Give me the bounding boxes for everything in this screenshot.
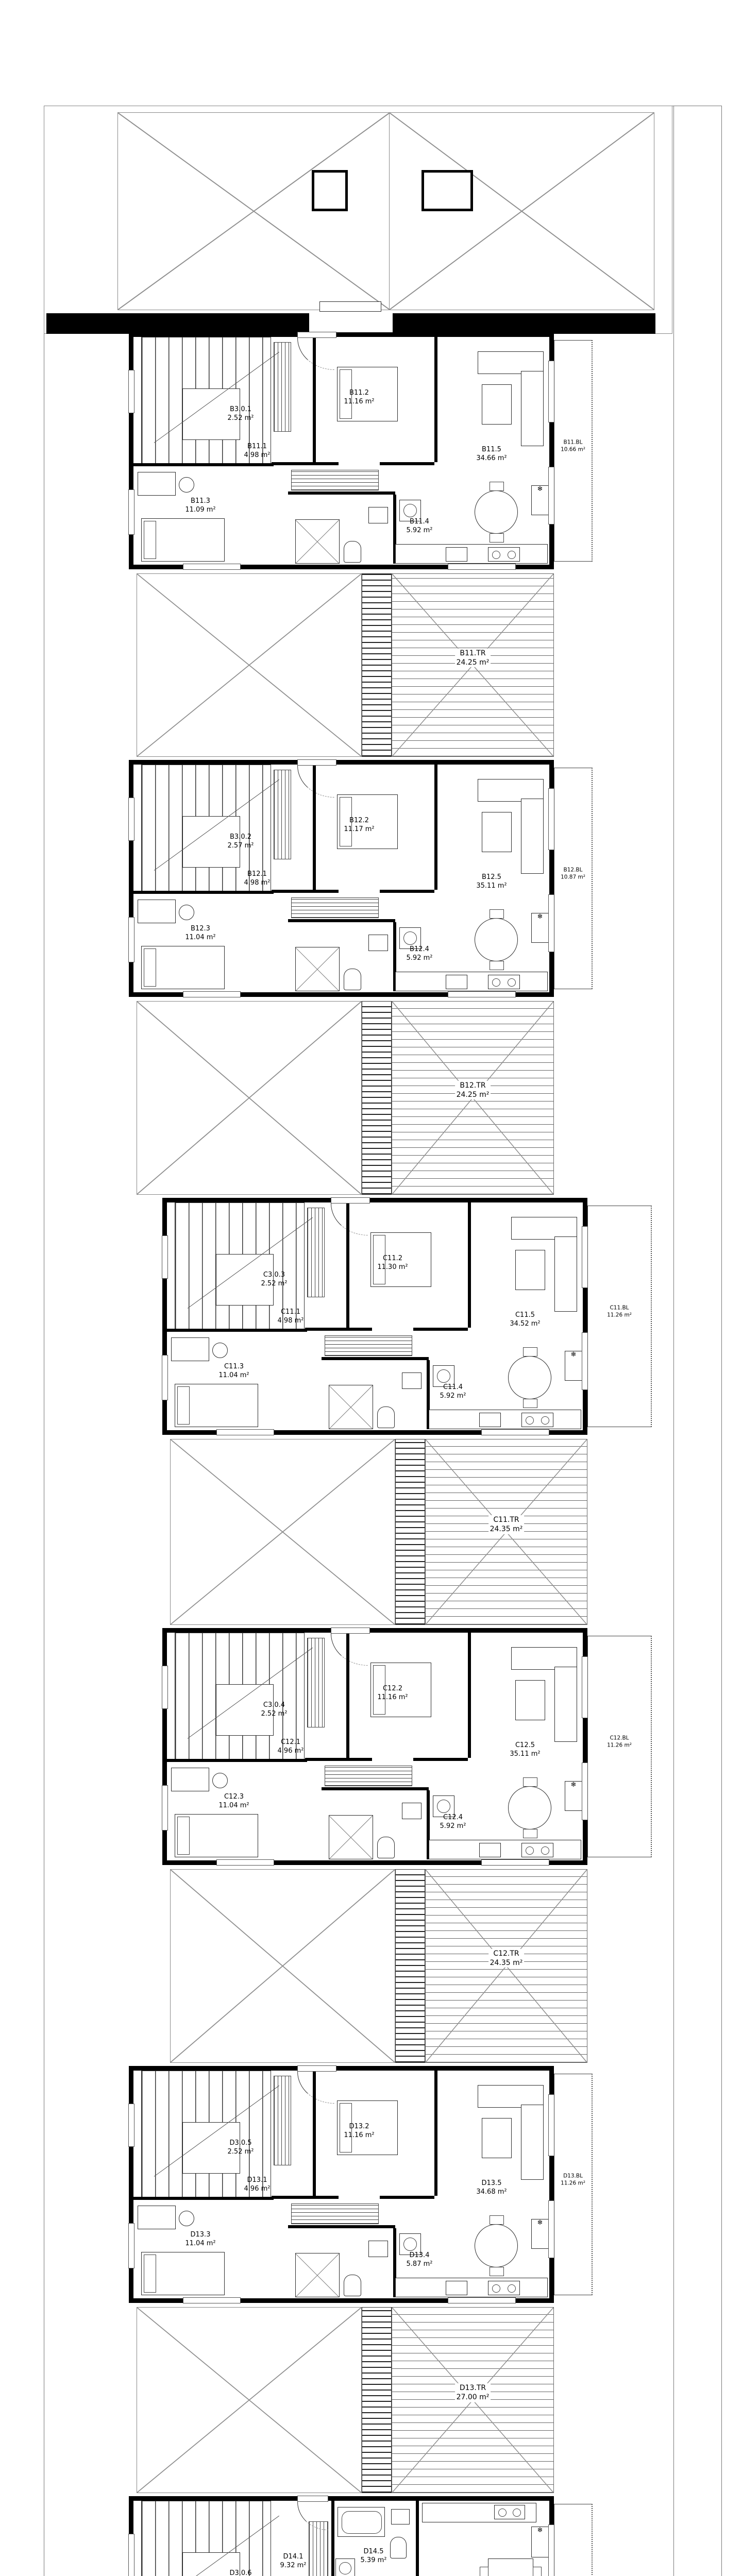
- stove: [494, 2505, 525, 2519]
- wall: [416, 2501, 419, 2576]
- floor-plan-unit-D14: ❄ D3.0.62.52 m² D14.19.32 m² D14.55.39 m…: [129, 2496, 554, 2576]
- window: [128, 2223, 134, 2268]
- window: [162, 1355, 168, 1400]
- wall: [288, 2225, 395, 2228]
- wardrobe-hatch: [325, 1766, 412, 1786]
- door-swing-arc: [297, 2502, 328, 2530]
- wall: [322, 1787, 429, 1790]
- terrace-label: C11.TR24.35 m²: [488, 1515, 525, 1534]
- toilet: [377, 1406, 395, 1428]
- walkway-hatch: [395, 1439, 425, 1625]
- kitchen-sink: [446, 2281, 467, 2295]
- balcony-D14: D14.BL11.28 m²: [554, 2504, 593, 2576]
- wall: [305, 1328, 372, 1331]
- kitchen-sink: [479, 1843, 501, 1857]
- wall: [468, 1202, 471, 1328]
- void-below: [170, 1869, 395, 2063]
- window: [128, 2534, 134, 2576]
- desk-chair: [212, 1343, 228, 1358]
- walkway-hatch: [362, 1001, 392, 1195]
- room-label-living: D13.534.68 m²: [476, 2179, 507, 2197]
- room-label-bathroom: D13.45.87 m²: [407, 2251, 433, 2269]
- wall: [380, 890, 434, 893]
- cross-brace-icon: [137, 2308, 361, 2493]
- wall: [380, 462, 434, 465]
- room-label-bathroom: B11.45.92 m²: [407, 518, 433, 535]
- room-label-hall: C12.14.96 m²: [278, 1738, 304, 1756]
- wall: [468, 1633, 471, 1758]
- bed-single: [141, 518, 225, 562]
- freezer-icon: ❄: [531, 2527, 549, 2557]
- entry-door-gap: [297, 2496, 328, 2502]
- room-label-core: B3.0.12.52 m²: [228, 405, 254, 423]
- balcony-D13: D13.BL11.26 m²: [554, 2074, 593, 2295]
- window: [183, 2297, 241, 2303]
- kitchen-counter: [395, 2278, 548, 2297]
- sofa: [554, 1667, 577, 1742]
- door-swing-arc: [297, 2072, 334, 2104]
- cross-brace-icon: [137, 574, 361, 756]
- wall: [133, 891, 274, 894]
- wardrobe-hatch: [274, 770, 291, 859]
- roof-parapet-wall: [46, 313, 309, 334]
- shower: [329, 1815, 373, 1859]
- entry-door-gap: [297, 332, 336, 338]
- balcony-label: C11.BL11.26 m²: [607, 1305, 632, 1319]
- cross-brace-icon: [171, 1439, 395, 1624]
- door-swing-arc: [297, 766, 334, 798]
- freezer-icon: ❄: [565, 1781, 582, 1811]
- wall: [272, 890, 339, 893]
- room-label-bathroom: B12.45.92 m²: [407, 945, 433, 963]
- window: [128, 489, 134, 535]
- wardrobe-hatch: [274, 2076, 291, 2165]
- toilet: [377, 1837, 395, 1858]
- balcony-label: D13.BL11.26 m²: [561, 2173, 585, 2187]
- window: [481, 1429, 549, 1435]
- balcony-label: C12.BL11.26 m²: [607, 1735, 632, 1749]
- floor-plan-unit-D13: ❄ D3.0.52.52 m² D13.14.96 m² D13.211.16 …: [129, 2066, 554, 2303]
- room-label-hall: D14.19.32 m²: [280, 2553, 307, 2570]
- window: [448, 564, 516, 570]
- wall: [305, 1758, 372, 1761]
- entry-door-gap: [331, 1628, 370, 1634]
- balcony-label: B11.BL10.66 m²: [561, 439, 585, 453]
- dining-table: [488, 2558, 533, 2576]
- door-swing-arc: [331, 1204, 368, 1235]
- desk-chair: [179, 2211, 194, 2226]
- wardrobe-hatch: [307, 1638, 325, 1727]
- window: [128, 917, 134, 962]
- freezer-icon: ❄: [565, 1351, 582, 1381]
- washing-machine: [335, 2558, 355, 2576]
- desk: [171, 1337, 209, 1361]
- bathtub: [338, 2507, 385, 2537]
- entry-door-gap: [297, 759, 336, 766]
- freezer-icon: ❄: [531, 913, 549, 943]
- bed-single: [141, 946, 225, 989]
- terrace-deck: D13.TR27.00 m²: [392, 2307, 554, 2493]
- roof-hatch: [312, 170, 348, 211]
- sofa: [521, 2105, 544, 2180]
- window: [216, 1429, 274, 1435]
- stove: [488, 2281, 520, 2295]
- room-label-bathroom: C12.45.92 m²: [440, 1814, 466, 1831]
- dining-table: [475, 490, 518, 534]
- window: [162, 1666, 168, 1709]
- cross-brace-icon: [137, 1002, 361, 1194]
- room-label-bathroom: D14.55.39 m²: [361, 2548, 387, 2565]
- room-label-living: C12.535.11 m²: [510, 1741, 540, 1759]
- desk-chair: [179, 477, 194, 493]
- terrace-label: C12.TR24.35 m²: [488, 1949, 525, 1968]
- desk: [138, 2206, 176, 2229]
- terrace-deck: B12.TR24.25 m²: [392, 1001, 554, 1195]
- wall: [331, 2501, 334, 2576]
- room-label-hall: C11.14.98 m²: [278, 1308, 304, 1326]
- terrace-label: B12.TR24.25 m²: [455, 1081, 491, 1099]
- coffee-table: [482, 384, 512, 425]
- window: [183, 991, 241, 997]
- balcony-C11: C11.BL11.26 m²: [587, 1206, 652, 1427]
- bathroom-sink: [391, 2509, 410, 2524]
- balcony-B11: B11.BL10.66 m²: [554, 340, 593, 562]
- wardrobe-hatch: [291, 2204, 379, 2224]
- room-label-bedroom: B11.211.16 m²: [344, 389, 374, 406]
- room-label-living: B11.534.66 m²: [476, 446, 507, 463]
- wall: [167, 1329, 307, 1332]
- room-label-bedroom: C12.211.16 m²: [377, 1685, 408, 1702]
- desk-chair: [179, 905, 194, 920]
- wall: [434, 2071, 437, 2196]
- bathroom-sink: [368, 935, 388, 951]
- wardrobe-hatch: [307, 1208, 325, 1297]
- shower: [329, 1385, 373, 1429]
- window: [128, 370, 134, 413]
- window: [481, 1859, 549, 1866]
- terrace-label: B11.TR24.25 m²: [455, 649, 491, 667]
- roof-parapet-wall: [393, 313, 655, 334]
- terrace-deck: C12.TR24.35 m²: [425, 1869, 587, 2063]
- room-label-hall: D13.14.96 m²: [244, 2176, 271, 2194]
- balcony-B12: B12.BL10.87 m²: [554, 768, 593, 989]
- desk: [138, 472, 176, 496]
- void-below: [137, 1001, 362, 1195]
- kitchen-sink: [446, 975, 467, 989]
- window: [216, 1859, 274, 1866]
- wall: [313, 337, 316, 462]
- coffee-table: [515, 1680, 545, 1720]
- bed-single: [175, 1814, 258, 1857]
- balcony-C12: C12.BL11.26 m²: [587, 1636, 652, 1857]
- wall: [413, 1328, 468, 1331]
- roof-void: [117, 112, 390, 310]
- roof-cross-brace-icon: [118, 113, 390, 310]
- room-label-bedroom: C12.311.04 m²: [218, 1793, 249, 1810]
- room-label-core: C3.0.32.52 m²: [261, 1271, 288, 1289]
- terrace-deck: C11.TR24.35 m²: [425, 1439, 587, 1625]
- toilet: [344, 2275, 361, 2296]
- window: [128, 2104, 134, 2147]
- window: [162, 1235, 168, 1279]
- kitchen-sink: [479, 1413, 501, 1427]
- wardrobe-hatch: [274, 342, 291, 432]
- floor-plan-unit-C11: ❄ C3.0.32.52 m² C11.14.98 m² C11.211.30 …: [162, 1198, 587, 1435]
- wall: [288, 492, 395, 495]
- toilet: [344, 969, 361, 990]
- wall: [272, 462, 339, 465]
- room-label-core: B3.0.22.57 m²: [228, 833, 254, 851]
- floor-plan-unit-B11: ❄ B3.0.12.52 m² B11.14.98 m² B11.211.16 …: [129, 332, 554, 569]
- dining-table: [475, 918, 518, 961]
- room-label-core: C3.0.42.52 m²: [261, 1701, 288, 1719]
- void-below: [137, 573, 362, 757]
- window: [183, 564, 241, 570]
- room-label-bedroom: B12.211.17 m²: [344, 817, 374, 834]
- roof-cross-brace-icon: [390, 113, 654, 310]
- sofa: [554, 1236, 577, 1312]
- room-label-bathroom: C11.45.92 m²: [440, 1383, 466, 1401]
- wall: [288, 919, 395, 922]
- window: [128, 798, 134, 841]
- door-swing-arc: [331, 1634, 368, 1666]
- room-label-living: B12.535.11 m²: [476, 873, 507, 891]
- window: [448, 991, 516, 997]
- stove: [488, 975, 520, 989]
- kitchen-counter: [429, 1840, 581, 1859]
- wall: [413, 1758, 468, 1761]
- room-label-bedroom: C11.211.30 m²: [377, 1255, 408, 1272]
- room-label-hall: B11.14.98 m²: [244, 443, 271, 460]
- sheet-boundary-left: [44, 106, 44, 2576]
- bathroom-sink: [402, 1803, 421, 1819]
- kitchen-sink: [446, 547, 467, 562]
- stove: [521, 1413, 553, 1427]
- floor-plan-unit-B12: ❄ B3.0.22.57 m² B12.14.98 m² B12.211.17 …: [129, 760, 554, 997]
- dining-table: [508, 1356, 551, 1399]
- wall: [322, 1357, 429, 1360]
- floor-plan-unit-C12: ❄ C3.0.42.52 m² C12.14.96 m² C12.211.16 …: [162, 1628, 587, 1865]
- room-label-bedroom: D13.311.04 m²: [185, 2231, 215, 2248]
- roof-hatch: [421, 170, 473, 211]
- desk: [138, 900, 176, 923]
- freezer-icon: ❄: [531, 485, 549, 515]
- desk-chair: [212, 1773, 228, 1788]
- wall: [313, 765, 316, 890]
- balcony-label: B12.BL10.87 m²: [561, 867, 585, 881]
- kitchen-counter: [395, 544, 548, 564]
- bed-single: [175, 1384, 258, 1427]
- bathroom-sink: [368, 507, 388, 523]
- site-line-right-inner: [673, 106, 674, 2576]
- room-label-core: D3.0.62.52 m²: [228, 2569, 254, 2576]
- window: [162, 1785, 168, 1831]
- shower: [295, 519, 340, 564]
- stove: [521, 1843, 553, 1857]
- dining-table: [475, 2224, 518, 2267]
- terrace-deck: B11.TR24.25 m²: [392, 573, 554, 757]
- room-label-hall: B12.14.98 m²: [244, 870, 271, 888]
- wall: [434, 337, 437, 462]
- wall: [133, 2197, 274, 2200]
- room-label-bedroom: C11.311.04 m²: [218, 1363, 249, 1380]
- wall: [133, 463, 274, 466]
- wardrobe-hatch: [291, 897, 379, 918]
- sofa: [521, 371, 544, 446]
- kitchen-counter: [429, 1410, 581, 1429]
- wall: [434, 765, 437, 890]
- wall: [272, 2196, 339, 2199]
- room-label-bedroom: D13.211.16 m²: [344, 2123, 374, 2140]
- shower: [295, 2253, 340, 2297]
- toilet: [390, 2537, 407, 2558]
- bathroom-sink: [368, 2241, 388, 2257]
- coffee-table: [482, 812, 512, 852]
- wall: [167, 1759, 307, 1762]
- bathroom-sink: [402, 1372, 421, 1389]
- cross-brace-icon: [171, 1870, 395, 2062]
- terrace-label: D13.TR27.00 m²: [455, 2383, 491, 2402]
- wall: [346, 1202, 349, 1328]
- room-label-living: C11.534.52 m²: [510, 1311, 540, 1329]
- walkway-hatch: [362, 573, 392, 757]
- entry-door-gap: [297, 2065, 336, 2072]
- entry-door-gap: [331, 1197, 370, 1204]
- room-label-bedroom: B11.311.09 m²: [185, 497, 215, 515]
- walkway-hatch: [395, 1869, 425, 2063]
- desk: [171, 1768, 209, 1791]
- toilet: [344, 541, 361, 563]
- window: [448, 2297, 516, 2303]
- room-label-bedroom: B12.311.04 m²: [185, 925, 215, 942]
- roof-void: [389, 112, 654, 310]
- bed-single: [141, 2252, 225, 2295]
- freezer-icon: ❄: [531, 2219, 549, 2249]
- site-line-right-outer: [721, 106, 722, 2576]
- sofa: [521, 799, 544, 874]
- wall: [313, 2071, 316, 2196]
- wall: [380, 2196, 434, 2199]
- room-label-core: D3.0.52.52 m²: [228, 2139, 254, 2157]
- wall: [346, 1633, 349, 1758]
- shower: [295, 947, 340, 991]
- roof-access-step: [319, 301, 381, 312]
- kitchen-counter: [395, 972, 548, 991]
- void-below: [170, 1439, 395, 1625]
- stove: [488, 547, 520, 562]
- coffee-table: [515, 1250, 545, 1290]
- dining-table: [508, 1786, 551, 1829]
- wardrobe-hatch: [325, 1335, 412, 1356]
- void-below: [137, 2307, 362, 2493]
- walkway-hatch: [362, 2307, 392, 2493]
- wardrobe-hatch: [291, 470, 379, 490]
- coffee-table: [482, 2118, 512, 2158]
- door-swing-arc: [297, 338, 334, 370]
